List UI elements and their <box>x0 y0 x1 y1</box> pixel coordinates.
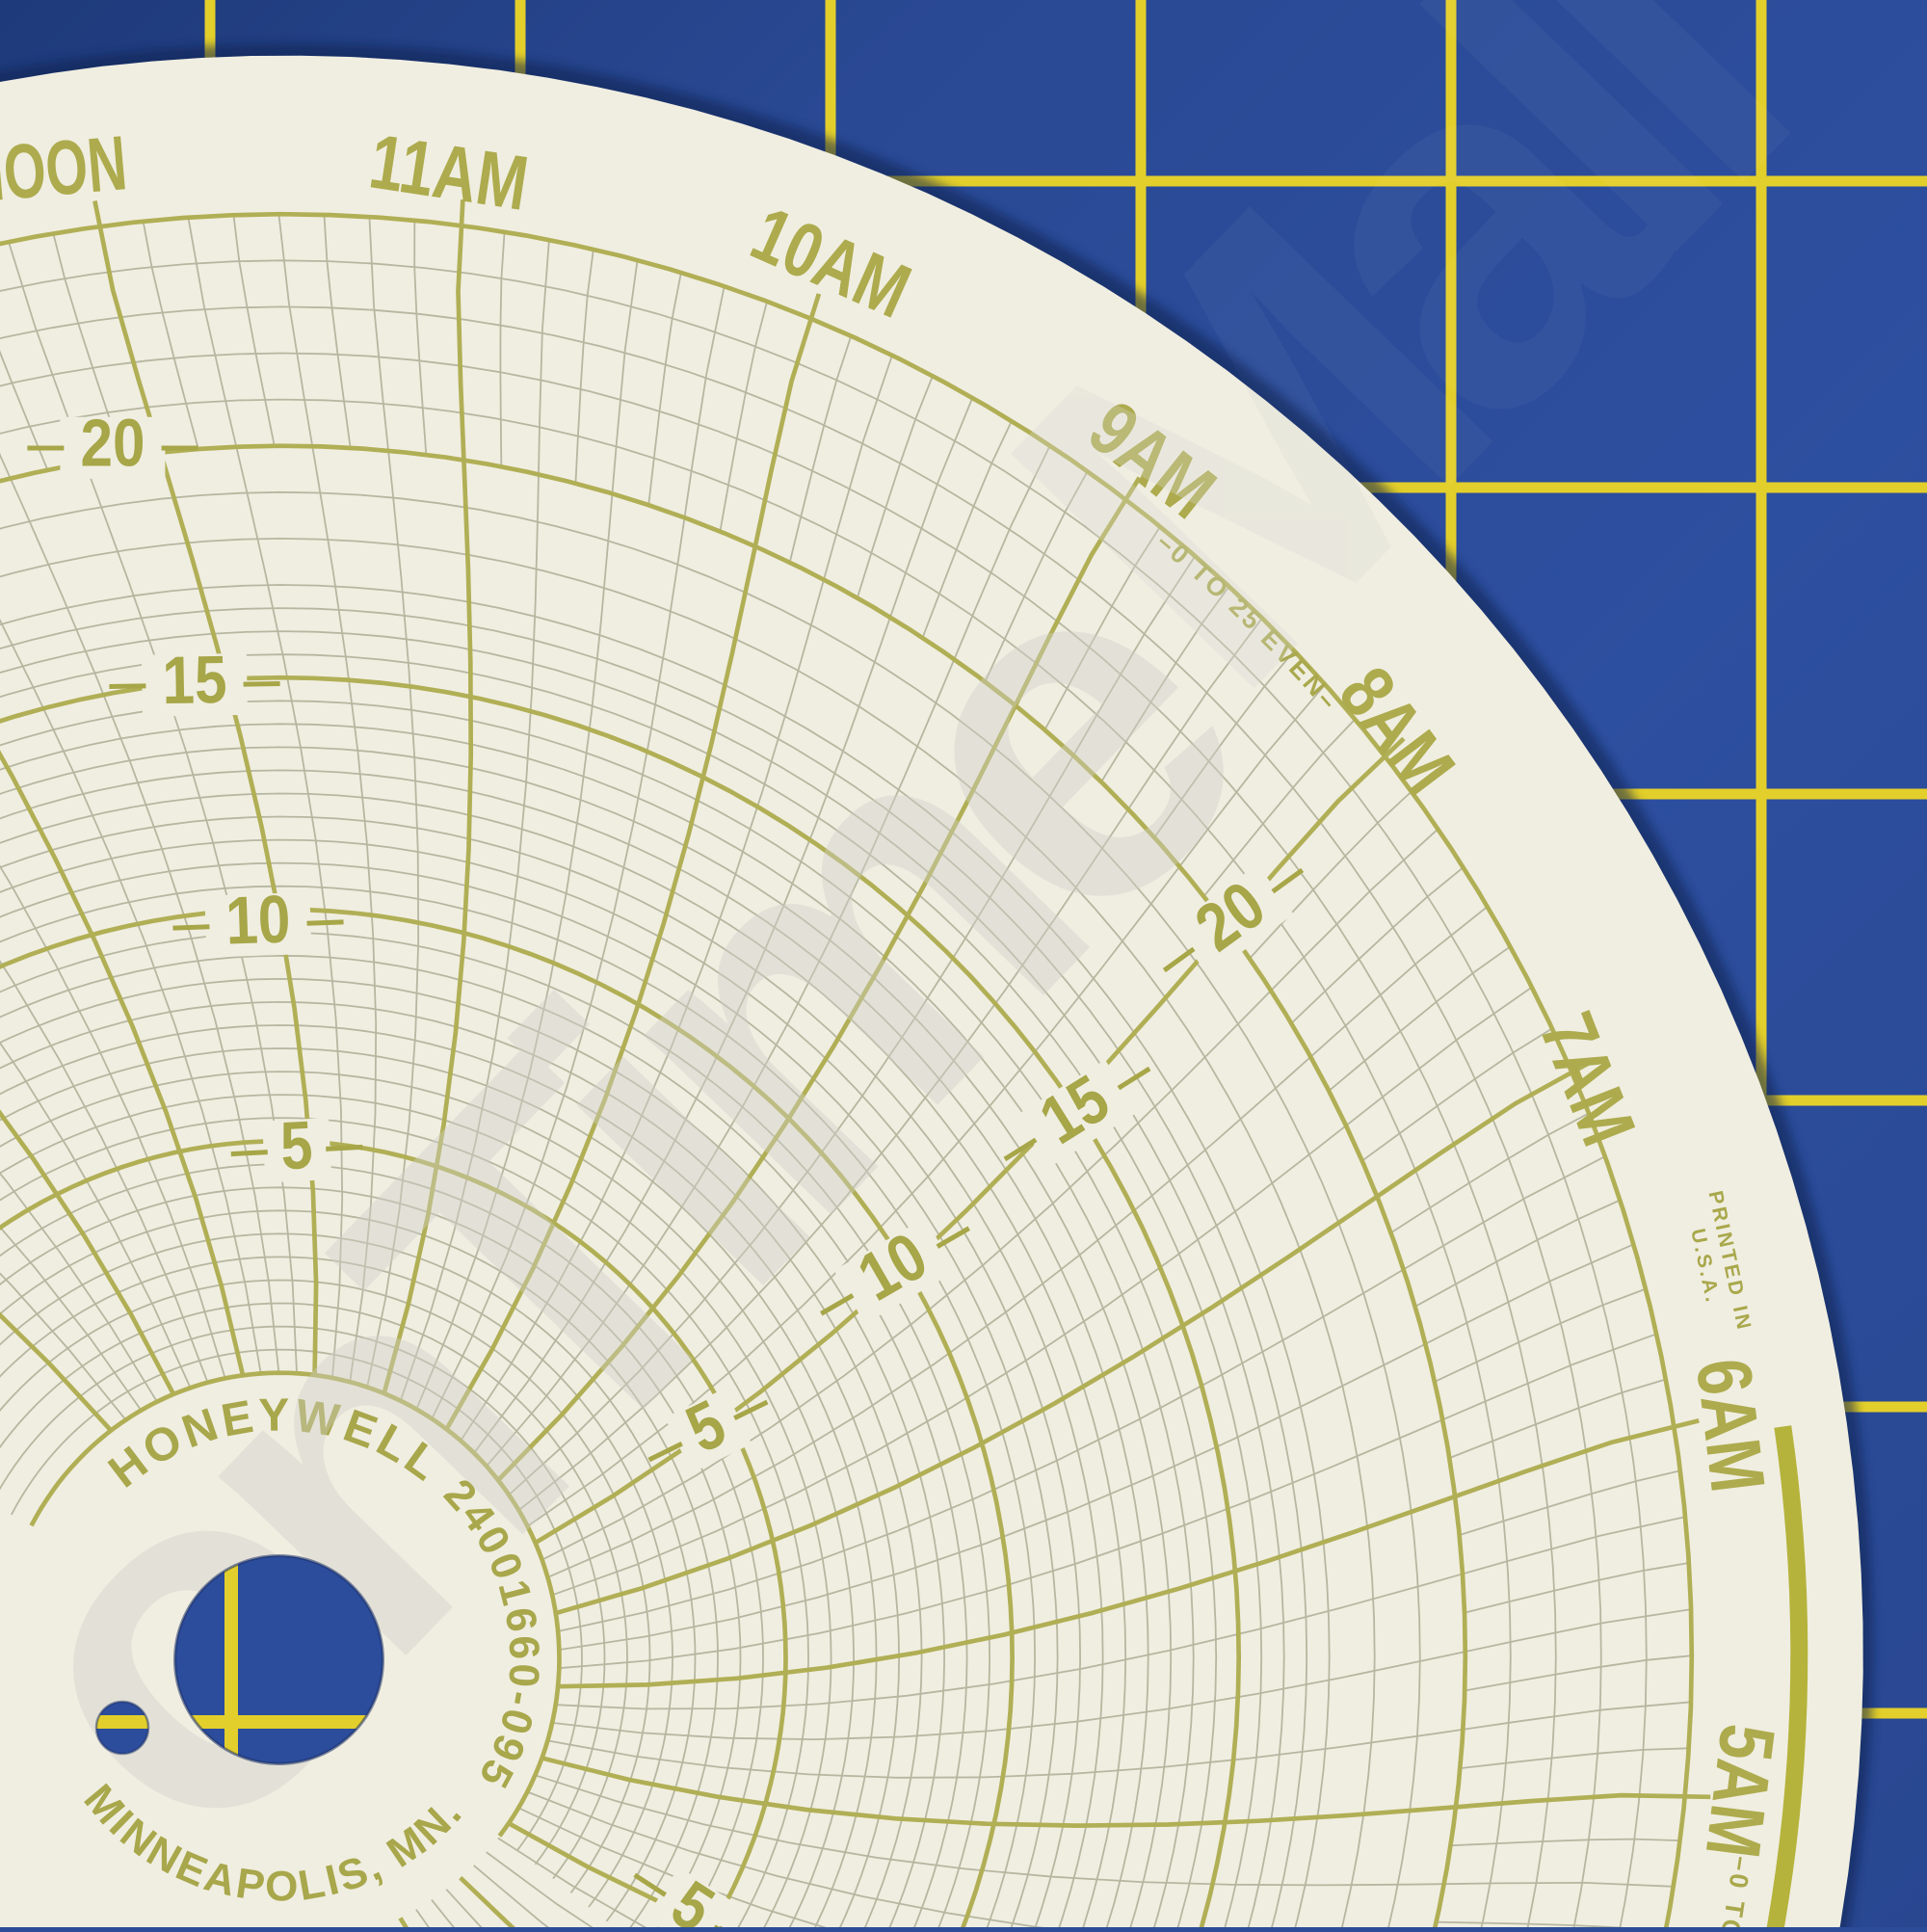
svg-text:6AM: 6AM <box>1680 1354 1782 1496</box>
svg-text:15: 15 <box>162 642 227 718</box>
svg-text:5AM: 5AM <box>1690 1720 1791 1863</box>
svg-text:20: 20 <box>81 405 145 480</box>
svg-text:10: 10 <box>224 881 292 958</box>
svg-text:NOON: NOON <box>0 119 130 219</box>
